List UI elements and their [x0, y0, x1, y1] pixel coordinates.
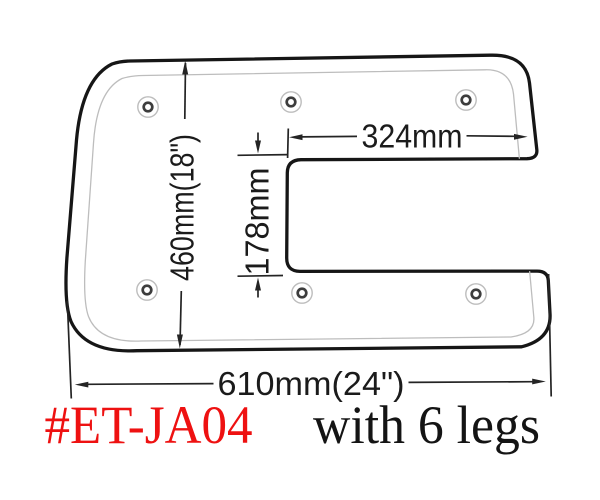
screw-hole-bore: [144, 103, 153, 112]
screw-hole-bore: [287, 98, 296, 107]
notch-width-dimension-label: 324mm: [362, 118, 463, 155]
legs-note-label: with 6 legs: [313, 395, 540, 455]
screw-hole-bore: [462, 96, 471, 105]
screw-hole-bore: [472, 290, 481, 299]
screw-hole-bore: [298, 289, 307, 298]
height-dimension-label: 460mm(18"): [164, 134, 201, 281]
technical-drawing: 460mm(18") 324mm 178mm 610mm(24") #ET-JA…: [0, 0, 600, 500]
model-number-label: #ET-JA04: [45, 395, 253, 455]
screw-hole-bore: [143, 286, 152, 295]
plate-outline: [66, 55, 550, 351]
notch-height-dimension-label: 178mm: [239, 168, 276, 276]
